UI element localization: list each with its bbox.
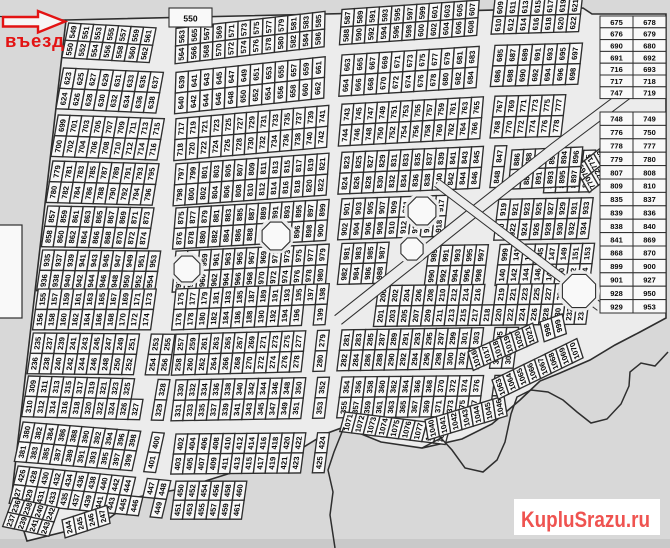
svg-text:668: 668 (366, 77, 376, 91)
svg-text:834: 834 (399, 174, 409, 188)
svg-text:754: 754 (399, 125, 409, 139)
svg-text:287: 287 (377, 333, 388, 346)
svg-text:964: 964 (221, 272, 231, 286)
svg-text:258: 258 (173, 358, 183, 372)
svg-text:746: 746 (352, 127, 362, 141)
svg-text:817: 817 (294, 159, 304, 173)
svg-text:259: 259 (187, 337, 197, 350)
svg-text:804: 804 (210, 185, 220, 199)
svg-text:212: 212 (449, 289, 460, 302)
svg-text:843: 843 (460, 150, 470, 164)
svg-text:846: 846 (469, 171, 479, 185)
svg-text:747: 747 (610, 89, 623, 98)
svg-text:408: 408 (211, 436, 222, 450)
svg-text:273: 273 (270, 335, 280, 349)
svg-text:885: 885 (235, 207, 245, 221)
svg-text:821: 821 (317, 157, 327, 171)
svg-text:372: 372 (447, 380, 458, 393)
svg-text:678: 678 (428, 73, 438, 87)
svg-text:967: 967 (247, 251, 257, 264)
svg-text:345: 345 (255, 402, 266, 416)
svg-text:738: 738 (293, 132, 303, 146)
svg-text:816: 816 (281, 180, 291, 194)
svg-text:402: 402 (175, 437, 186, 450)
svg-text:895: 895 (557, 170, 567, 184)
svg-text:891: 891 (534, 171, 544, 185)
svg-text:175: 175 (176, 292, 186, 306)
svg-text:839: 839 (610, 209, 623, 218)
svg-text:697: 697 (570, 47, 580, 60)
svg-text:412: 412 (234, 437, 245, 450)
svg-text:875: 875 (176, 211, 186, 225)
svg-text:182: 182 (209, 312, 219, 325)
svg-text:907: 907 (377, 201, 387, 214)
svg-text:452: 452 (187, 484, 198, 497)
svg-text:286: 286 (362, 353, 373, 367)
svg-text:777: 777 (643, 142, 656, 151)
svg-text:596: 596 (391, 25, 401, 39)
svg-text:343: 343 (244, 402, 255, 416)
svg-text:348: 348 (282, 381, 293, 395)
svg-text:842: 842 (446, 172, 456, 185)
svg-text:870: 870 (643, 249, 656, 258)
svg-text:576: 576 (251, 38, 260, 53)
svg-text:806: 806 (222, 184, 232, 198)
svg-text:371: 371 (433, 399, 444, 413)
svg-text:237: 237 (44, 337, 55, 350)
svg-text:966: 966 (233, 272, 243, 286)
svg-text:184: 184 (221, 311, 231, 325)
svg-text:197: 197 (305, 288, 315, 301)
svg-text:167: 167 (108, 293, 119, 306)
svg-text:291: 291 (400, 332, 411, 346)
svg-text:820: 820 (304, 179, 314, 193)
svg-text:404: 404 (187, 437, 198, 451)
svg-text:204: 204 (402, 288, 413, 302)
svg-text:949: 949 (124, 255, 135, 268)
svg-text:721: 721 (200, 119, 210, 133)
svg-text:983: 983 (353, 246, 363, 260)
svg-text:599: 599 (417, 6, 427, 20)
svg-text:932: 932 (566, 222, 577, 235)
svg-text:990: 990 (426, 270, 437, 283)
svg-text:201: 201 (375, 309, 386, 323)
svg-text:173: 173 (144, 292, 155, 306)
svg-text:263: 263 (211, 336, 221, 350)
svg-text:339: 339 (220, 403, 231, 416)
svg-text:457: 457 (208, 503, 219, 516)
svg-text:898: 898 (304, 224, 314, 238)
svg-text:608: 608 (466, 20, 476, 34)
svg-text:768: 768 (492, 120, 503, 134)
svg-text:260: 260 (185, 358, 195, 371)
svg-text:826: 826 (352, 176, 362, 190)
svg-text:831: 831 (389, 153, 399, 167)
svg-text:928: 928 (610, 289, 623, 298)
svg-text:165: 165 (96, 292, 107, 306)
svg-text:976: 976 (292, 269, 302, 283)
svg-text:837: 837 (424, 152, 434, 165)
svg-text:584: 584 (301, 32, 310, 47)
svg-text:580: 580 (276, 36, 285, 50)
svg-text:283: 283 (353, 333, 364, 347)
svg-text:837: 837 (643, 195, 656, 204)
svg-text:224: 224 (517, 308, 528, 322)
svg-text:691: 691 (610, 53, 623, 62)
svg-text:203: 203 (387, 309, 398, 323)
svg-text:602: 602 (429, 23, 439, 37)
svg-text:159: 159 (61, 293, 72, 306)
svg-text:въезд: въезд (5, 30, 65, 51)
svg-text:423: 423 (291, 456, 302, 470)
svg-text:760: 760 (434, 124, 444, 137)
svg-text:972: 972 (268, 271, 278, 284)
svg-text:621: 621 (570, 0, 580, 12)
svg-text:242: 242 (65, 357, 76, 370)
svg-text:968: 968 (245, 271, 255, 285)
svg-text:611: 611 (508, 0, 518, 13)
svg-text:692: 692 (530, 69, 540, 82)
svg-text:268: 268 (232, 356, 242, 370)
svg-text:368: 368 (424, 379, 435, 393)
svg-text:618: 618 (543, 16, 553, 30)
svg-text:177: 177 (187, 292, 197, 305)
svg-text:416: 416 (258, 436, 269, 450)
svg-text:811: 811 (259, 161, 269, 175)
svg-text:718: 718 (643, 77, 656, 86)
svg-text:363: 363 (386, 400, 397, 414)
svg-text:897: 897 (569, 170, 579, 183)
svg-text:921: 921 (510, 202, 521, 216)
svg-text:677: 677 (430, 53, 440, 66)
svg-text:577: 577 (264, 20, 273, 34)
svg-text:239: 239 (56, 337, 67, 350)
svg-text:340: 340 (234, 382, 245, 395)
svg-text:996: 996 (462, 268, 473, 282)
svg-text:841: 841 (448, 151, 458, 165)
svg-text:868: 868 (610, 249, 623, 258)
svg-text:163: 163 (85, 292, 96, 306)
svg-text:362: 362 (388, 380, 399, 393)
svg-text:845: 845 (471, 150, 481, 164)
svg-text:984: 984 (351, 266, 361, 280)
svg-text:900: 900 (643, 262, 656, 271)
svg-text:424: 424 (317, 436, 328, 450)
svg-text:726: 726 (222, 138, 232, 152)
svg-text:597: 597 (405, 7, 415, 21)
svg-text:155: 155 (37, 292, 48, 306)
svg-text:848: 848 (492, 170, 503, 184)
svg-text:735: 735 (282, 112, 292, 126)
svg-text:589: 589 (355, 10, 365, 24)
svg-text:267: 267 (235, 336, 245, 349)
svg-text:839: 839 (436, 152, 446, 165)
svg-text:298: 298 (433, 352, 444, 366)
svg-text:206: 206 (413, 288, 424, 302)
svg-text:158: 158 (46, 312, 57, 326)
svg-text:240: 240 (53, 357, 64, 370)
svg-text:753: 753 (401, 104, 411, 118)
svg-text:895: 895 (294, 204, 304, 218)
svg-text:819: 819 (306, 158, 316, 172)
svg-text:613: 613 (520, 0, 530, 14)
svg-text:950: 950 (121, 275, 132, 288)
svg-text:565: 565 (190, 27, 199, 42)
svg-text:250: 250 (112, 358, 123, 371)
svg-text:947: 947 (112, 254, 123, 267)
svg-text:350: 350 (293, 381, 304, 394)
svg-text:656: 656 (276, 85, 285, 100)
svg-text:220: 220 (493, 308, 504, 321)
svg-text:722: 722 (199, 141, 209, 155)
svg-text:346: 346 (270, 381, 281, 395)
svg-text:612: 612 (506, 18, 516, 31)
svg-text:687: 687 (507, 49, 517, 62)
svg-text:814: 814 (269, 181, 279, 195)
svg-text:KupluSrazu.ru: KupluSrazu.ru (521, 507, 650, 532)
svg-text:997: 997 (476, 249, 487, 262)
svg-text:649: 649 (239, 69, 248, 83)
svg-text:666: 666 (353, 77, 363, 91)
svg-text:188: 188 (244, 310, 254, 324)
svg-text:965: 965 (235, 251, 245, 265)
svg-text:903: 903 (353, 201, 363, 215)
svg-text:758: 758 (423, 124, 433, 138)
svg-text:929: 929 (557, 202, 568, 215)
svg-text:147: 147 (547, 248, 558, 261)
svg-text:884: 884 (221, 228, 231, 242)
svg-text:808: 808 (234, 183, 244, 197)
svg-text:604: 604 (441, 21, 451, 35)
svg-text:344: 344 (258, 381, 269, 395)
svg-text:952: 952 (133, 275, 144, 288)
svg-text:568: 568 (202, 44, 211, 59)
svg-text:662: 662 (313, 82, 322, 96)
svg-text:755: 755 (413, 103, 423, 117)
svg-text:716: 716 (610, 65, 623, 74)
svg-text:222: 222 (505, 308, 516, 321)
svg-text:142: 142 (509, 268, 520, 281)
svg-text:686: 686 (492, 69, 502, 83)
svg-text:425: 425 (314, 456, 325, 470)
svg-text:550: 550 (183, 14, 197, 24)
svg-text:252: 252 (124, 358, 135, 371)
svg-text:211: 211 (434, 309, 445, 322)
svg-text:274: 274 (268, 355, 278, 369)
svg-text:693: 693 (643, 65, 656, 74)
svg-text:592: 592 (366, 27, 376, 41)
svg-text:926: 926 (531, 222, 542, 236)
svg-text:766: 766 (470, 121, 480, 135)
svg-text:572: 572 (227, 42, 236, 56)
svg-text:166: 166 (94, 312, 105, 326)
svg-text:748: 748 (364, 127, 374, 141)
svg-text:162: 162 (70, 313, 81, 326)
svg-text:809: 809 (247, 162, 257, 176)
svg-text:953: 953 (643, 302, 656, 311)
svg-text:969: 969 (258, 251, 268, 264)
svg-text:925: 925 (534, 202, 545, 216)
svg-text:669: 669 (380, 56, 390, 69)
svg-text:905: 905 (365, 201, 375, 215)
svg-text:347: 347 (267, 402, 278, 415)
svg-text:351: 351 (291, 401, 302, 415)
svg-text:835: 835 (413, 152, 423, 166)
svg-text:341: 341 (232, 402, 243, 416)
svg-text:729: 729 (247, 116, 257, 130)
svg-text:334: 334 (199, 382, 210, 396)
svg-text:405: 405 (184, 457, 195, 471)
svg-text:642: 642 (189, 95, 198, 109)
svg-text:207: 207 (411, 309, 422, 322)
svg-text:927: 927 (545, 202, 556, 215)
svg-text:651: 651 (252, 67, 261, 82)
svg-text:750: 750 (375, 127, 385, 140)
svg-text:799: 799 (188, 166, 198, 180)
svg-text:759: 759 (436, 103, 446, 116)
svg-text:896: 896 (571, 150, 581, 164)
svg-text:761: 761 (448, 101, 458, 115)
svg-text:208: 208 (425, 288, 436, 302)
svg-text:808: 808 (643, 168, 656, 177)
svg-text:682: 682 (453, 72, 463, 85)
svg-text:450: 450 (175, 484, 186, 497)
svg-text:172: 172 (129, 313, 140, 326)
svg-text:414: 414 (246, 436, 257, 450)
svg-text:877: 877 (188, 211, 198, 224)
svg-text:369: 369 (421, 400, 432, 413)
svg-text:270: 270 (244, 356, 254, 369)
svg-text:670: 670 (378, 77, 388, 90)
svg-text:606: 606 (454, 20, 464, 34)
svg-text:296: 296 (421, 352, 432, 366)
svg-text:262: 262 (197, 358, 207, 371)
svg-text:640: 640 (176, 96, 185, 110)
svg-text:650: 650 (239, 89, 248, 103)
svg-text:658: 658 (288, 83, 297, 98)
svg-text:800: 800 (187, 187, 197, 201)
svg-text:888: 888 (245, 227, 255, 241)
svg-text:751: 751 (389, 105, 399, 119)
svg-text:893: 893 (545, 170, 555, 184)
svg-text:970: 970 (256, 271, 266, 284)
svg-text:691: 691 (532, 47, 542, 61)
svg-text:459: 459 (220, 503, 231, 516)
svg-text:195: 195 (294, 288, 304, 302)
svg-text:297: 297 (436, 332, 447, 345)
svg-text:180: 180 (197, 312, 207, 325)
svg-text:683: 683 (467, 50, 477, 64)
svg-text:773: 773 (530, 99, 541, 113)
svg-text:940: 940 (62, 274, 73, 287)
svg-text:186: 186 (232, 310, 242, 324)
svg-text:569: 569 (215, 25, 224, 39)
svg-text:161: 161 (73, 292, 84, 306)
svg-text:749: 749 (643, 115, 656, 124)
svg-text:566: 566 (189, 45, 198, 60)
svg-text:931: 931 (569, 201, 580, 215)
svg-text:906: 906 (363, 221, 373, 235)
svg-text:992: 992 (438, 269, 449, 282)
svg-text:977: 977 (306, 249, 316, 262)
svg-text:603: 603 (442, 4, 452, 18)
svg-text:284: 284 (351, 353, 362, 367)
svg-text:420: 420 (281, 437, 292, 450)
svg-text:276: 276 (279, 355, 289, 369)
svg-text:963: 963 (223, 252, 233, 266)
svg-text:671: 671 (392, 54, 402, 68)
svg-text:171: 171 (132, 292, 143, 306)
svg-text:289: 289 (389, 333, 400, 346)
svg-text:749: 749 (377, 106, 387, 119)
svg-text:370: 370 (436, 380, 447, 393)
svg-text:174: 174 (141, 312, 152, 326)
svg-text:303: 303 (471, 331, 482, 345)
svg-text:696: 696 (555, 67, 565, 81)
svg-text:364: 364 (400, 379, 411, 393)
svg-text:978: 978 (304, 268, 314, 282)
svg-text:354: 354 (341, 380, 352, 394)
svg-text:213: 213 (446, 308, 457, 322)
svg-text:332: 332 (187, 383, 198, 396)
svg-text:157: 157 (49, 293, 60, 306)
svg-text:690: 690 (610, 42, 623, 51)
svg-text:827: 827 (365, 155, 375, 168)
svg-text:455: 455 (196, 503, 207, 517)
svg-text:218: 218 (482, 308, 493, 322)
svg-text:349: 349 (279, 402, 290, 415)
svg-text:639: 639 (177, 75, 186, 89)
svg-text:878: 878 (186, 230, 196, 244)
svg-text:336: 336 (211, 382, 222, 396)
svg-text:460: 460 (234, 484, 245, 497)
svg-text:661: 661 (314, 60, 323, 75)
svg-text:770: 770 (504, 121, 514, 134)
svg-text:620: 620 (556, 17, 566, 30)
svg-text:338: 338 (223, 382, 234, 396)
svg-text:889: 889 (258, 207, 268, 220)
svg-text:937: 937 (53, 254, 64, 267)
svg-text:600: 600 (416, 24, 426, 38)
svg-text:360: 360 (377, 380, 388, 393)
svg-text:912: 912 (398, 221, 408, 234)
svg-text:281: 281 (341, 333, 352, 347)
svg-text:581: 581 (289, 16, 298, 31)
svg-text:876: 876 (174, 231, 184, 245)
svg-text:899: 899 (317, 203, 327, 216)
svg-text:665: 665 (355, 57, 365, 71)
svg-text:202: 202 (390, 289, 401, 302)
svg-text:993: 993 (452, 248, 463, 262)
svg-text:933: 933 (581, 201, 592, 215)
svg-text:169: 169 (120, 293, 131, 306)
svg-text:942: 942 (74, 274, 85, 287)
svg-text:266: 266 (220, 356, 230, 370)
svg-text:744: 744 (340, 128, 350, 142)
svg-text:261: 261 (199, 336, 209, 350)
svg-text:979: 979 (317, 248, 327, 261)
svg-text:196: 196 (291, 308, 301, 322)
svg-text:797: 797 (176, 167, 186, 181)
svg-text:293: 293 (412, 332, 423, 346)
svg-text:900: 900 (316, 224, 326, 237)
svg-text:981: 981 (342, 246, 352, 260)
svg-text:564: 564 (177, 46, 186, 61)
svg-text:825: 825 (354, 155, 364, 169)
svg-text:995: 995 (464, 248, 475, 262)
svg-text:841: 841 (610, 235, 623, 244)
svg-text:367: 367 (409, 400, 420, 413)
